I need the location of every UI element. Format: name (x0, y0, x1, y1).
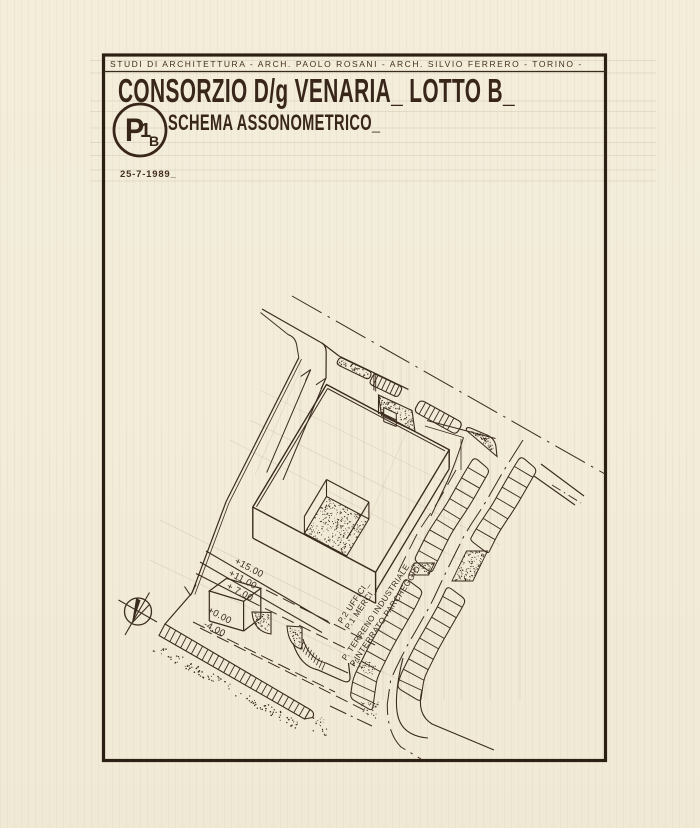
svg-text:STUDI DI ARCHITETTURA - ARCH.: STUDI DI ARCHITETTURA - ARCH. PAOLO ROSA… (110, 59, 583, 69)
svg-text:SCHEMA ASSONOMETRICO_: SCHEMA ASSONOMETRICO_ (168, 111, 380, 136)
svg-text:B: B (149, 133, 159, 149)
svg-text:CONSORZIO D/g VENARIA_ LOTTO B: CONSORZIO D/g VENARIA_ LOTTO B_ (118, 72, 515, 109)
svg-text:25-7-1989_: 25-7-1989_ (120, 169, 177, 180)
